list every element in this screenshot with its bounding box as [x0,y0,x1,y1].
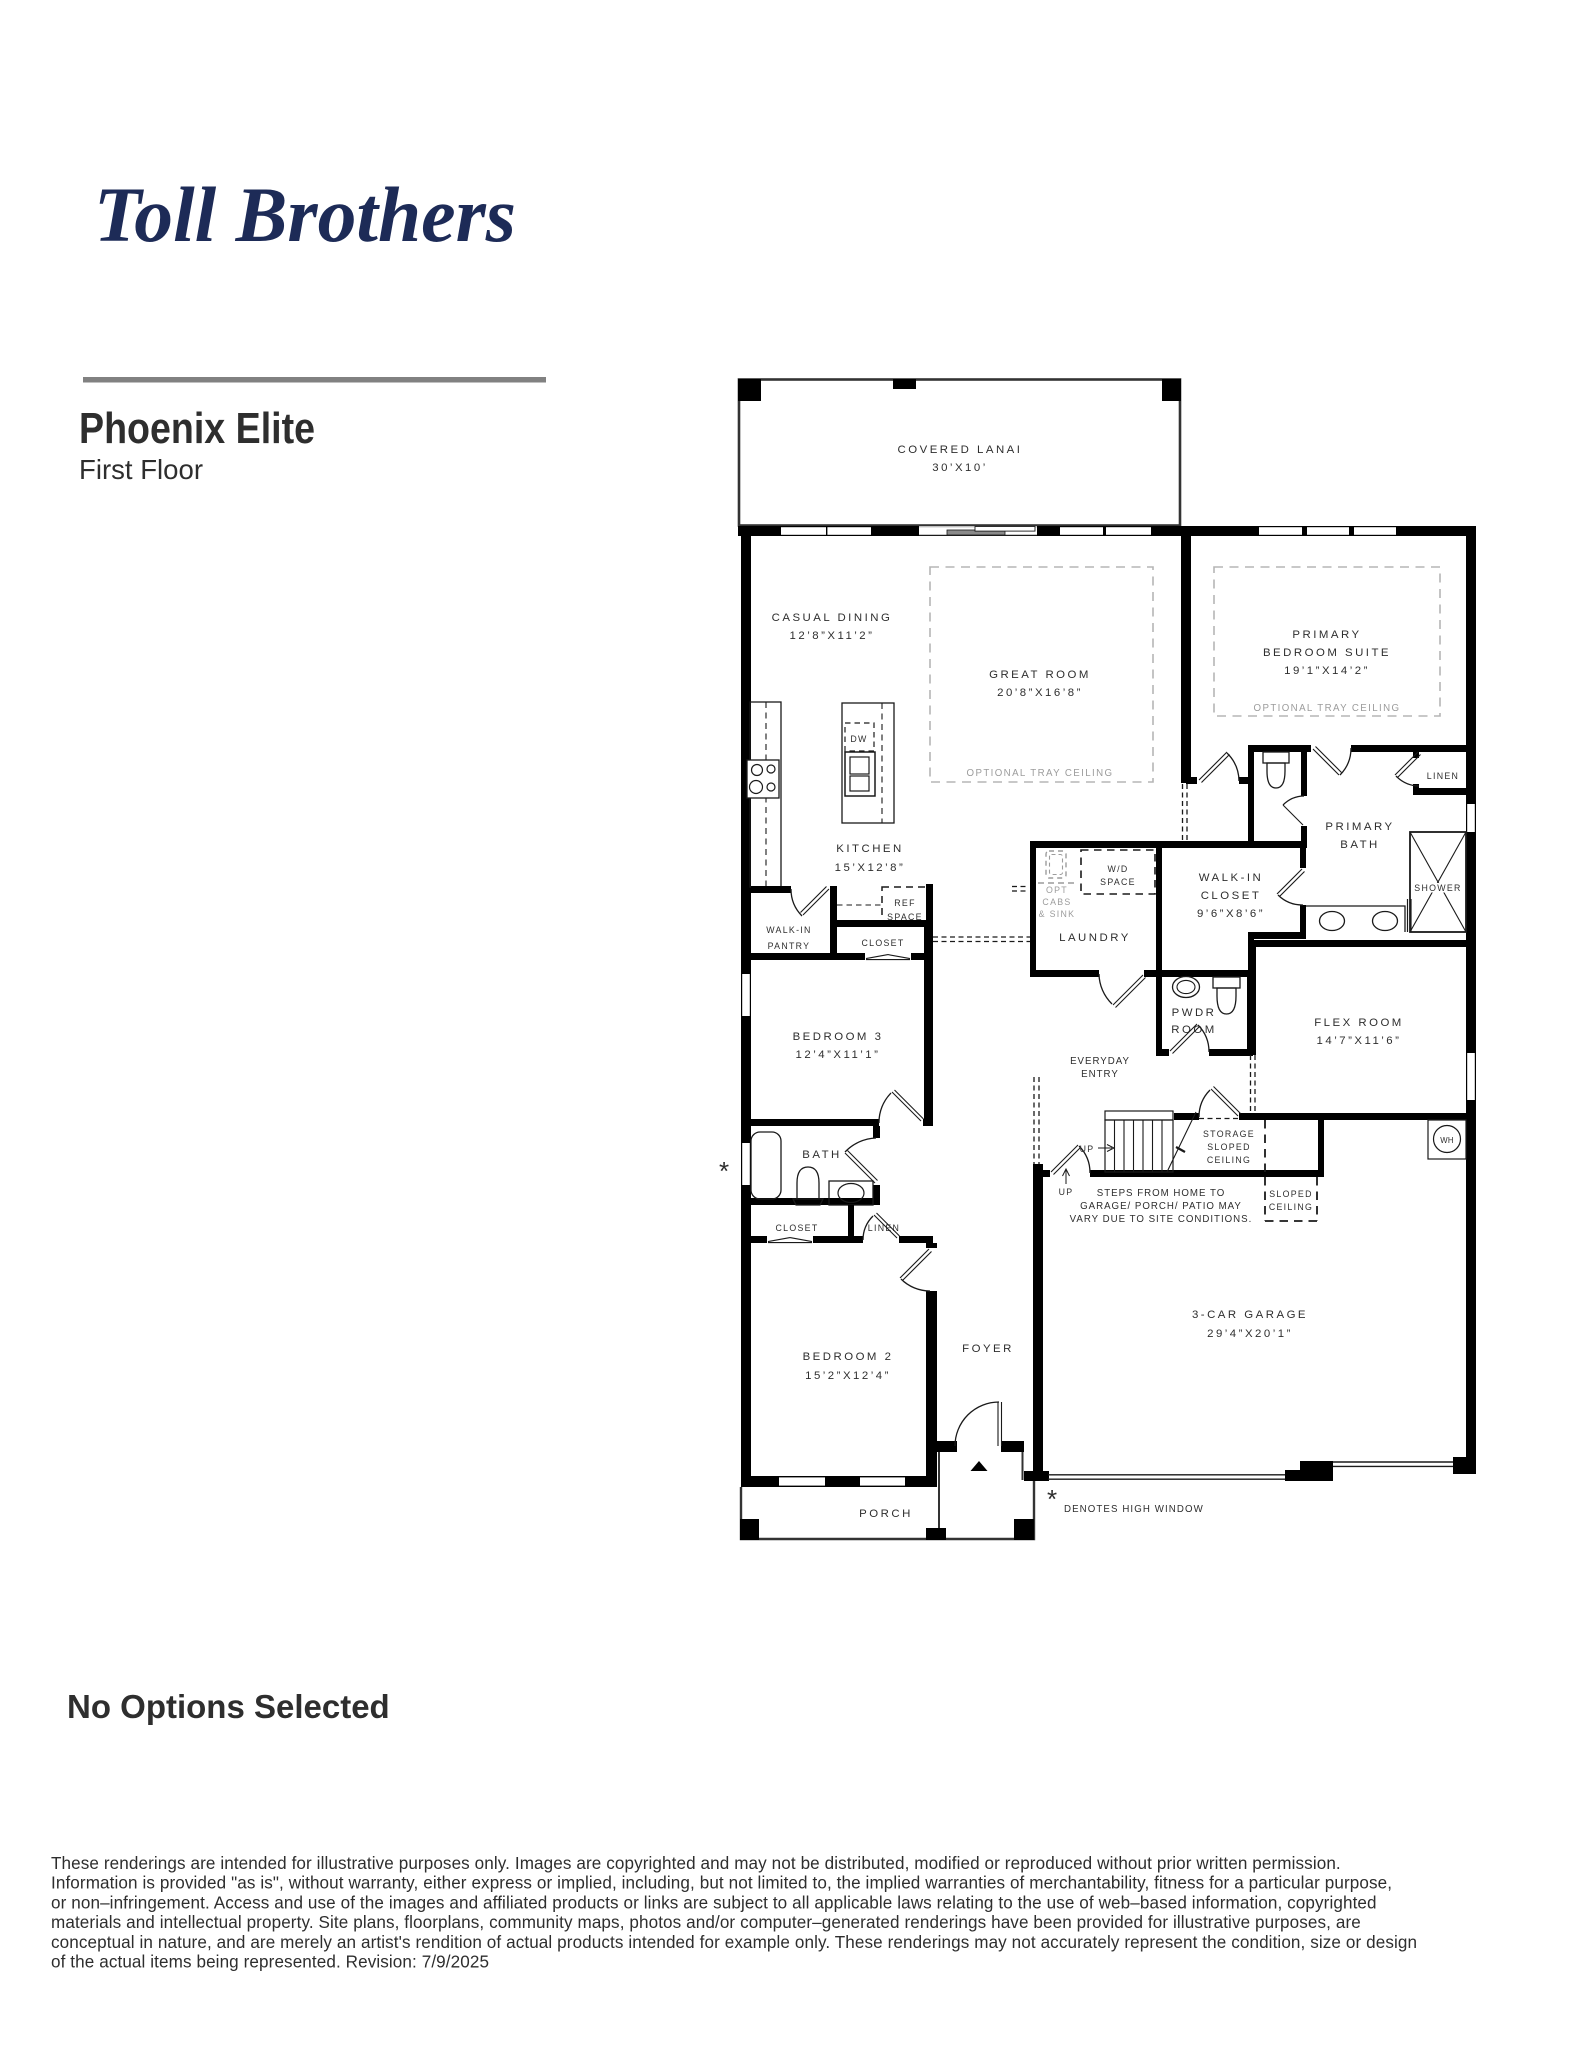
svg-text:ENTRY: ENTRY [1081,1069,1119,1080]
svg-text:*: * [719,1156,729,1186]
svg-text:OPTIONAL TRAY CEILING: OPTIONAL TRAY CEILING [967,768,1114,779]
svg-text:LINEN: LINEN [1427,771,1459,781]
svg-text:15’X12’8”: 15’X12’8” [835,862,906,874]
svg-text:ROOM: ROOM [1171,1024,1216,1036]
svg-text:EVERYDAY: EVERYDAY [1070,1056,1130,1067]
svg-text:DENOTES HIGH WINDOW: DENOTES HIGH WINDOW [1064,1504,1204,1515]
svg-text:FLEX ROOM: FLEX ROOM [1314,1017,1404,1029]
svg-text:UP: UP [1080,1144,1095,1154]
svg-text:KITCHEN: KITCHEN [836,843,904,855]
svg-text:UP: UP [1059,1187,1074,1197]
svg-text:SHOWER: SHOWER [1414,883,1461,893]
svg-text:DW: DW [850,734,867,744]
svg-text:SPACE: SPACE [1100,877,1136,887]
svg-text:*: * [1047,1484,1057,1514]
svg-text:OPT: OPT [1046,885,1068,895]
svg-text:Information is provided "as is: Information is provided "as is", without… [51,1874,1392,1893]
svg-text:BATH: BATH [1340,839,1380,851]
svg-text:CASUAL DINING: CASUAL DINING [772,612,893,624]
svg-text:BEDROOM 2: BEDROOM 2 [803,1351,894,1363]
svg-text:WH: WH [1440,1136,1454,1145]
svg-text:STEPS FROM HOME TO: STEPS FROM HOME TO [1097,1188,1226,1199]
svg-text:VARY DUE TO SITE CONDITIONS.: VARY DUE TO SITE CONDITIONS. [1070,1214,1253,1225]
svg-text:FOYER: FOYER [962,1343,1014,1355]
svg-text:Phoenix Elite: Phoenix Elite [79,404,315,453]
svg-text:12’4”X11’1”: 12’4”X11’1” [796,1049,881,1061]
svg-text:SLOPED: SLOPED [1207,1142,1251,1152]
svg-text:CABS: CABS [1042,897,1071,907]
svg-text:PANTRY: PANTRY [768,941,811,951]
svg-text:REF: REF [894,898,916,908]
svg-text:12’8”X11’2”: 12’8”X11’2” [790,630,875,642]
svg-text:materials and intellectual pro: materials and intellectual property. Sit… [51,1913,1361,1932]
svg-text:PWDR: PWDR [1172,1007,1217,1019]
svg-text:BATH: BATH [802,1149,842,1161]
svg-text:29’4”X20’1”: 29’4”X20’1” [1207,1328,1293,1340]
svg-text:14’7”X11’6”: 14’7”X11’6” [1317,1035,1402,1047]
svg-text:W/D: W/D [1108,864,1129,874]
svg-text:CLOSET: CLOSET [862,938,905,948]
svg-text:30’X10’: 30’X10’ [932,462,988,474]
svg-text:CLOSET: CLOSET [1201,890,1262,902]
svg-text:15’2”X12’4”: 15’2”X12’4” [805,1370,891,1382]
svg-text:Toll Brothers: Toll Brothers [94,171,516,258]
svg-text:conceptual in nature, and are: conceptual in nature, and are merely an … [51,1933,1417,1952]
svg-text:STORAGE: STORAGE [1203,1129,1255,1139]
svg-text:& SINK: & SINK [1039,909,1076,919]
svg-text:3-CAR GARAGE: 3-CAR GARAGE [1192,1309,1308,1321]
svg-text:BEDROOM SUITE: BEDROOM SUITE [1263,647,1391,659]
svg-text:No Options Selected: No Options Selected [67,1688,390,1725]
svg-text:of the actual items being repr: of the actual items being represented. R… [51,1953,489,1972]
svg-text:GARAGE/ PORCH/ PATIO MAY: GARAGE/ PORCH/ PATIO MAY [1080,1201,1242,1212]
svg-text:SLOPED: SLOPED [1269,1189,1313,1199]
svg-text:LAUNDRY: LAUNDRY [1059,932,1131,944]
svg-text:GREAT ROOM: GREAT ROOM [989,669,1091,681]
svg-text:OPTIONAL TRAY CEILING: OPTIONAL TRAY CEILING [1254,703,1401,714]
svg-text:WALK-IN: WALK-IN [1199,872,1264,884]
svg-text:BEDROOM 3: BEDROOM 3 [793,1031,884,1043]
svg-text:PRIMARY: PRIMARY [1325,821,1394,833]
svg-text:First Floor: First Floor [79,454,203,485]
svg-text:WALK-IN: WALK-IN [766,925,811,935]
svg-text:COVERED LANAI: COVERED LANAI [898,444,1023,456]
svg-text:PRIMARY: PRIMARY [1292,629,1361,641]
svg-text:CEILING: CEILING [1269,1202,1313,1212]
svg-text:or non–infringement. Access an: or non–infringement. Access and use of t… [51,1893,1377,1912]
svg-text:20’8”X16’8”: 20’8”X16’8” [997,687,1083,699]
svg-text:These renderings are intended: These renderings are intended for illust… [51,1854,1341,1873]
svg-text:19’1”X14’2”: 19’1”X14’2” [1284,665,1370,677]
svg-text:CLOSET: CLOSET [776,1223,819,1233]
svg-text:CEILING: CEILING [1207,1155,1251,1165]
svg-text:PORCH: PORCH [859,1508,913,1520]
svg-text:9’6”X8’6”: 9’6”X8’6” [1197,908,1265,920]
